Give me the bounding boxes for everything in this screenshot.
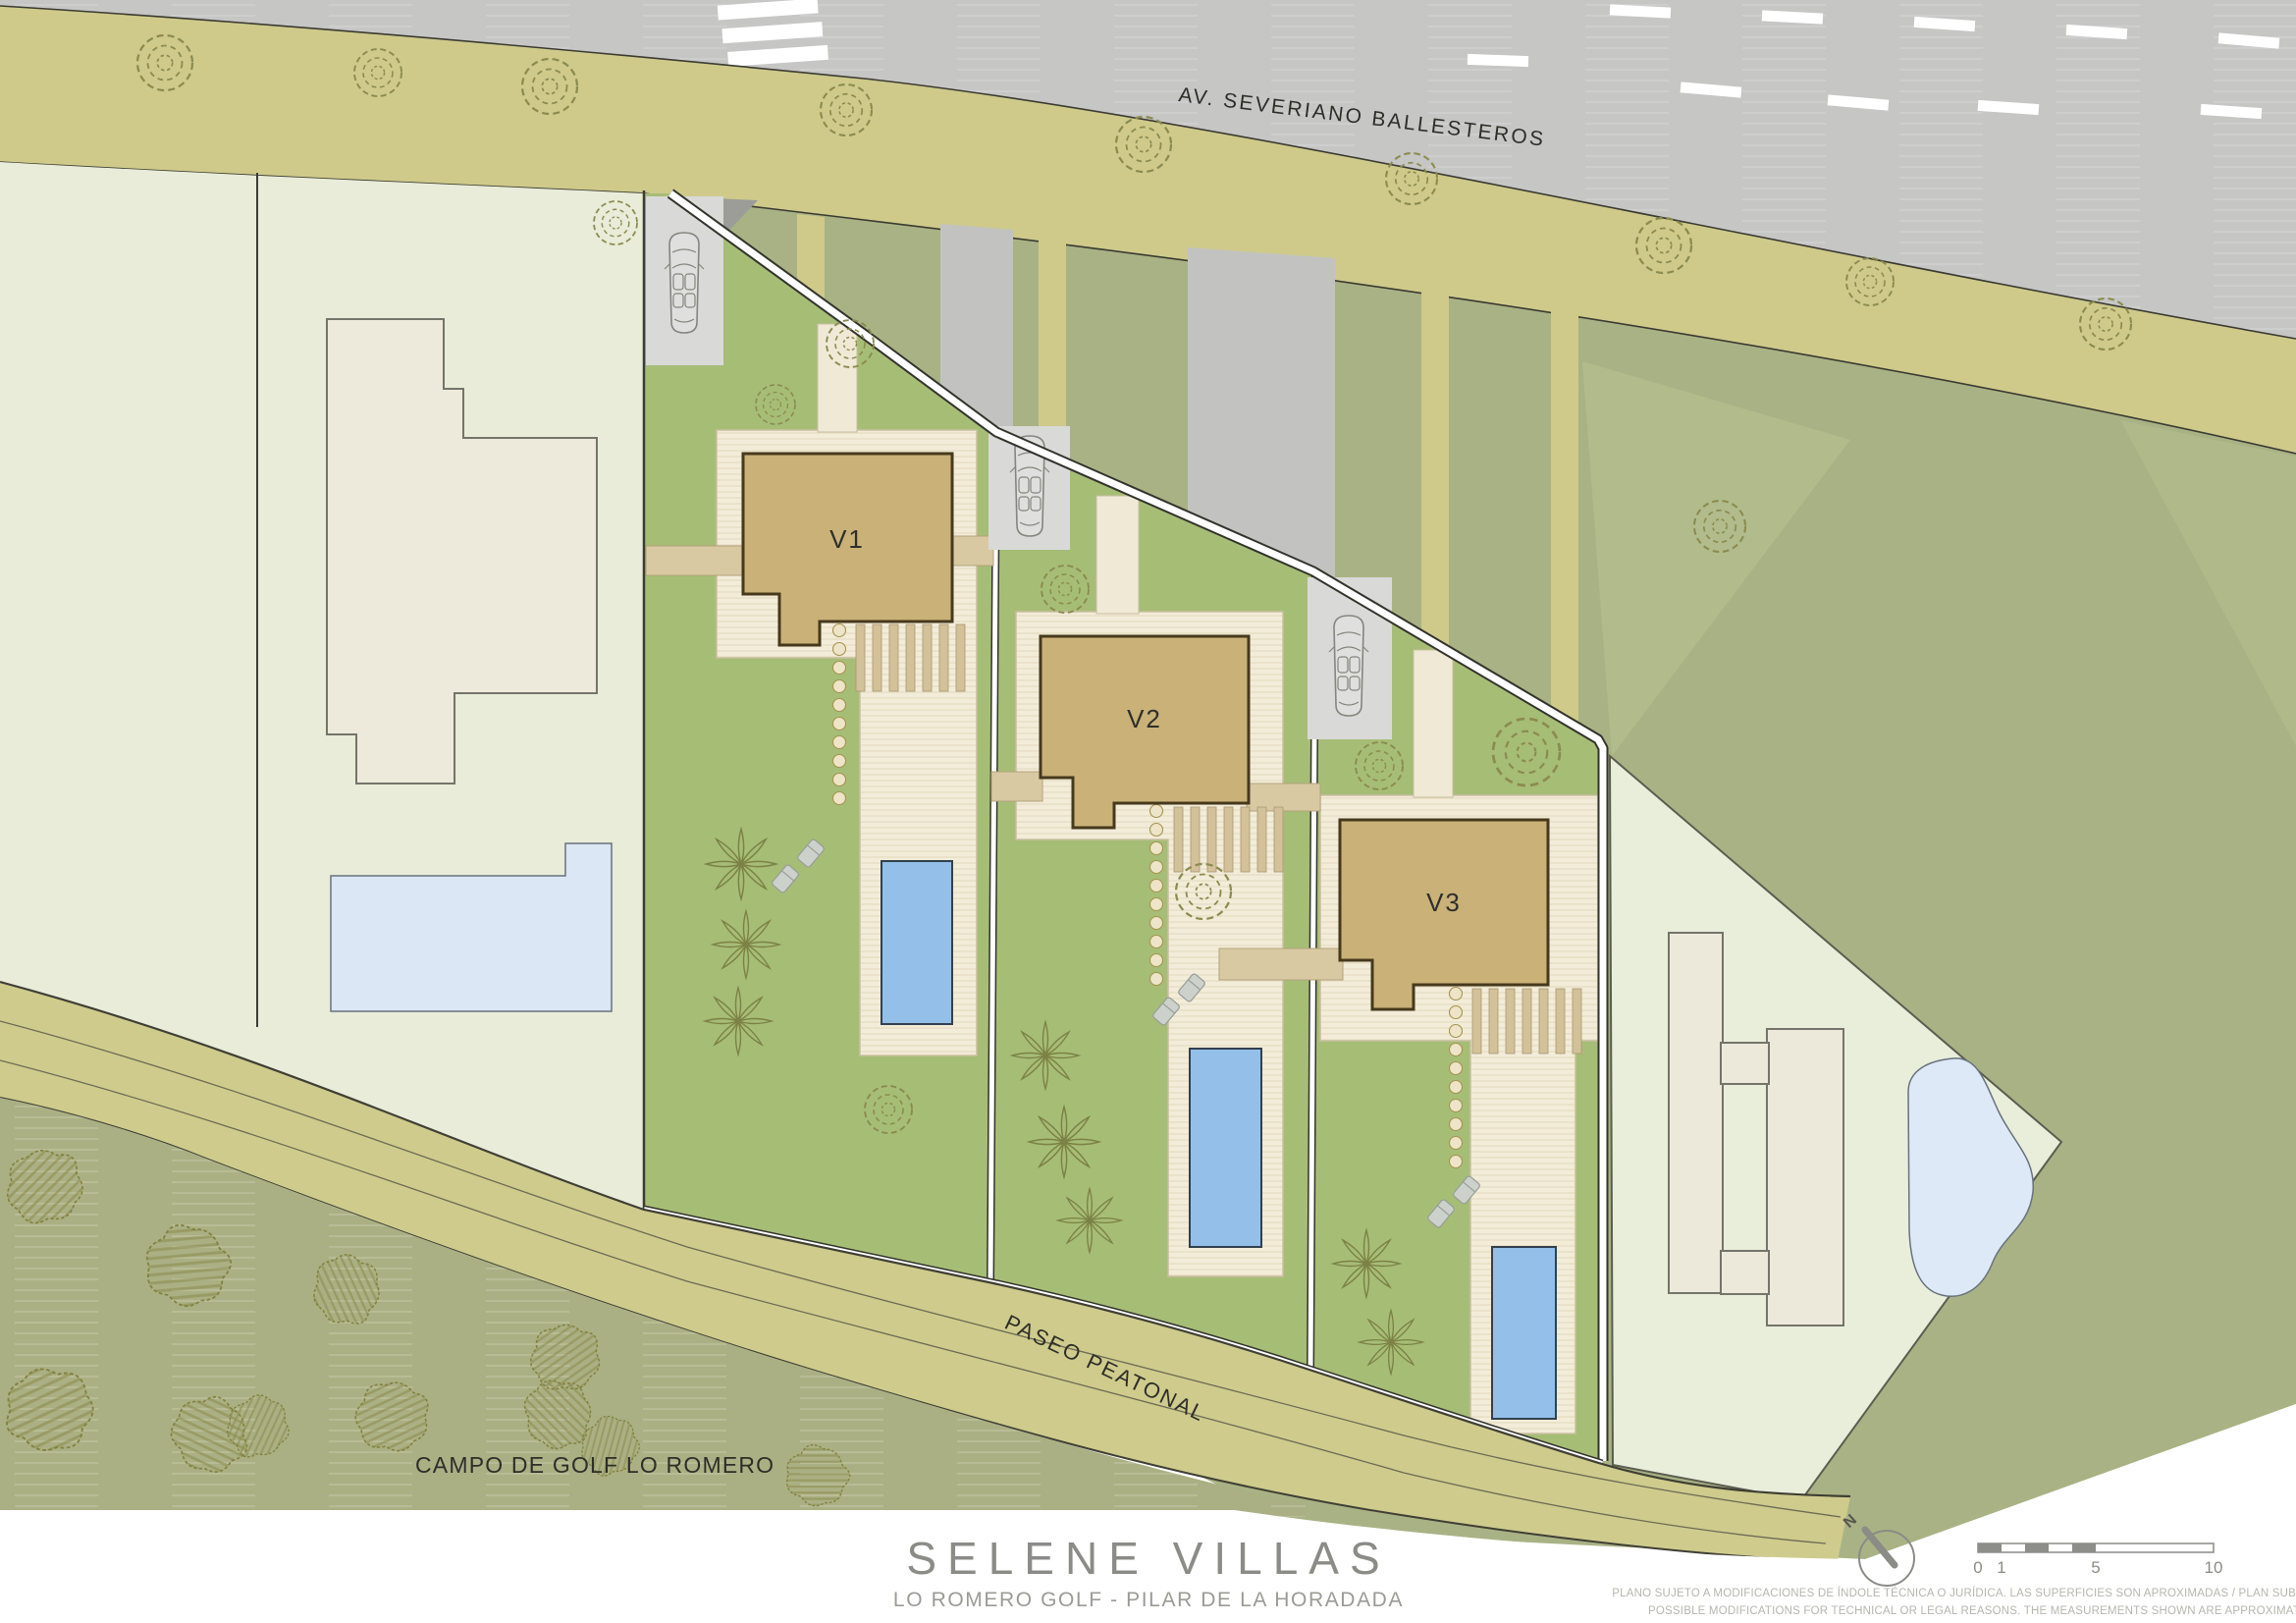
pergola-v3 [1472, 989, 1581, 1054]
pergola-v1 [856, 624, 965, 691]
pool-v1 [881, 861, 952, 1024]
scale-label-5: 5 [2091, 1558, 2100, 1577]
crosswalk-icon [718, 0, 828, 67]
villa-label-2: V2 [1127, 704, 1162, 733]
scale-label-1: 1 [1997, 1558, 2005, 1577]
pool-v3 [1492, 1247, 1556, 1419]
pergola-v2 [1174, 807, 1283, 872]
site-plan-drawing: AV. SEVERIANO BALLESTEROS [0, 0, 2296, 1623]
plan-subtitle: LO ROMERO GOLF - PILAR DE LA HORADADA [893, 1589, 1404, 1611]
site-plan-page: AV. SEVERIANO BALLESTEROS [0, 0, 2296, 1623]
scale-label-0: 0 [1973, 1558, 1982, 1577]
villa-label-1: V1 [829, 524, 865, 554]
villa-label-3: V3 [1426, 888, 1462, 917]
scale-label-10: 10 [2205, 1558, 2223, 1577]
plan-title: SELENE VILLAS [906, 1533, 1390, 1584]
pool-v2 [1190, 1049, 1261, 1247]
disclaimer-line-2: POSSIBLE MODIFICATIONS FOR TECHNICAL OR … [1648, 1605, 2296, 1617]
disclaimer-line-1: PLANO SUJETO A MODIFICACIONES DE ÍNDOLE … [1612, 1587, 2296, 1599]
golf-course-label: CAMPO DE GOLF LO ROMERO [415, 1452, 774, 1478]
